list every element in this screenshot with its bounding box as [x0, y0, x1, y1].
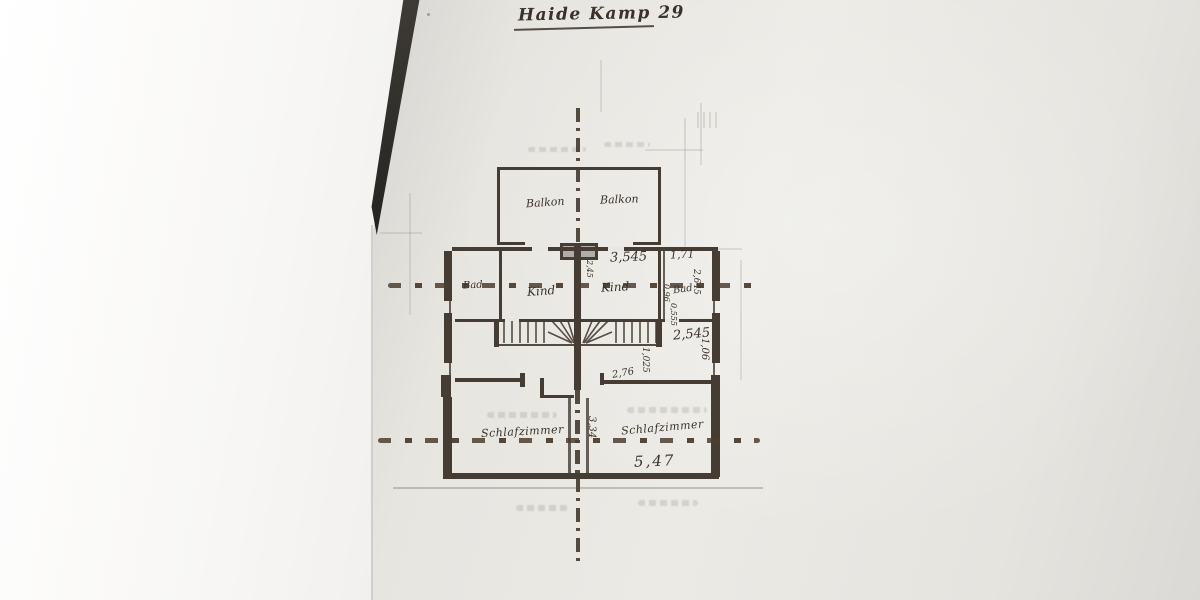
outer-wall-left-lower	[443, 397, 452, 477]
hall-stub	[600, 373, 604, 385]
ghost-handwriting	[487, 412, 557, 418]
room-label-child-right: Kind	[601, 279, 630, 294]
balcony-wall-left	[497, 167, 500, 245]
paper-crease-line	[393, 487, 763, 489]
ghost-hatch	[697, 112, 719, 128]
background-sheet	[0, 0, 430, 600]
dim-landing-width: 1,025	[640, 347, 650, 373]
dim-bath-fixture-a: 0,96	[662, 284, 671, 302]
outer-wall-left-pier	[444, 313, 452, 363]
ghost-handwriting	[516, 505, 568, 511]
hall-wall-left	[455, 378, 523, 382]
balcony-wall-top	[497, 167, 661, 170]
paper-speck	[427, 13, 430, 16]
dim-bath-right-depth: 2,645	[691, 269, 701, 295]
center-axis-line-upper	[576, 108, 580, 243]
hall-stub	[520, 373, 525, 387]
dim-stair-landing-depth: 1,06	[699, 338, 710, 360]
room-label-balcony-right: Balkon	[600, 192, 639, 206]
dim-bath-right-width: 1,71	[670, 247, 695, 261]
ghost-line	[645, 149, 703, 151]
center-axis-line-lower	[576, 478, 580, 566]
outer-wall-right-pier	[712, 251, 720, 301]
plan-paper-sheet	[373, 0, 1200, 600]
balcony-wall-bottom-left	[497, 242, 525, 245]
chimney-block	[560, 243, 598, 260]
balcony-door-gap	[532, 247, 548, 251]
outer-wall-bottom	[443, 473, 719, 479]
ghost-handwriting	[638, 500, 698, 506]
ghost-line	[380, 232, 422, 234]
balcony-wall-right	[658, 167, 661, 245]
ghost-handwriting	[604, 142, 650, 147]
ghost-line	[600, 60, 602, 112]
party-wall	[574, 243, 581, 390]
page-title: Haide Kamp 29	[518, 3, 685, 26]
dim-bedroom-depth: 3,34	[586, 416, 597, 438]
outer-wall-left-pier	[444, 251, 452, 301]
ghost-line	[740, 260, 742, 380]
paper-edge-line	[371, 225, 373, 600]
balcony-wall-bottom-right	[633, 242, 661, 245]
photographed-floor-plan: Haide Kamp 29	[0, 0, 1200, 600]
ghost-line	[409, 193, 411, 315]
ghost-handwriting	[627, 407, 707, 413]
outer-wall-right-lower	[711, 375, 720, 477]
dim-bedroom-right-width: 5,47	[634, 451, 676, 470]
fold-line-lower	[378, 438, 760, 443]
room-label-bath-left: Bad	[463, 279, 483, 291]
hall-wall-right	[600, 380, 712, 384]
staircase-treads	[496, 318, 664, 350]
fold-line-upper	[388, 283, 760, 288]
ghost-line	[684, 118, 686, 250]
center-axis-line-mid	[575, 390, 580, 478]
dim-party-wall-detail: 2,45	[585, 260, 594, 278]
dim-bath-fixture-b: 0,555	[669, 303, 678, 326]
room-label-balcony-left: Balkon	[526, 195, 565, 211]
room-label-child-left: Kind	[527, 283, 556, 299]
dim-child-right-width: 3,545	[610, 249, 648, 265]
outer-wall-left-pier	[441, 375, 451, 397]
